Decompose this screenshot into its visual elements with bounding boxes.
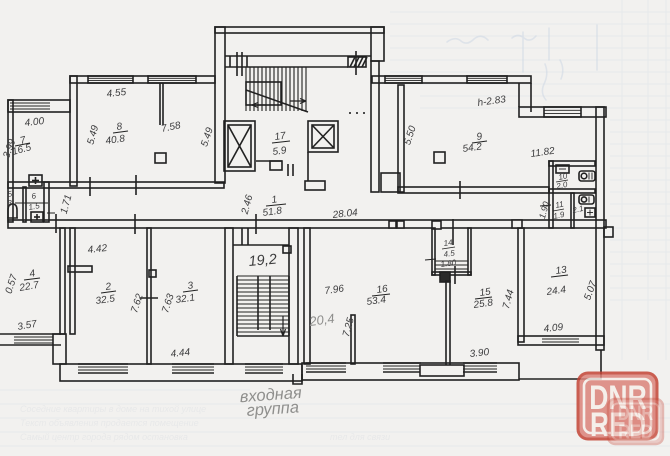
- svg-text:14: 14: [443, 238, 454, 248]
- svg-text:Самый центр города рядом остан: Самый центр города рядом остановка: [20, 432, 188, 442]
- svg-text:5.9: 5.9: [272, 145, 288, 158]
- svg-text:Соседние квартиры в доме на ти: Соседние квартиры в доме на тихой улице: [20, 404, 206, 414]
- svg-text:4.55: 4.55: [106, 87, 127, 100]
- svg-text:Текст объявления продается пом: Текст объявления продается помещение: [20, 418, 199, 428]
- svg-text:4.44: 4.44: [170, 347, 191, 360]
- svg-text:тел для связи: тел для связи: [330, 432, 390, 442]
- svg-text:3.90: 3.90: [469, 347, 490, 360]
- svg-text:17: 17: [274, 130, 287, 143]
- svg-text:4.42: 4.42: [87, 243, 108, 256]
- svg-text:4.09: 4.09: [543, 322, 564, 335]
- svg-text:4.00: 4.00: [24, 116, 45, 129]
- svg-text:19,2: 19,2: [248, 252, 278, 270]
- svg-text:RED: RED: [618, 420, 653, 443]
- svg-text:группа: группа: [246, 398, 299, 420]
